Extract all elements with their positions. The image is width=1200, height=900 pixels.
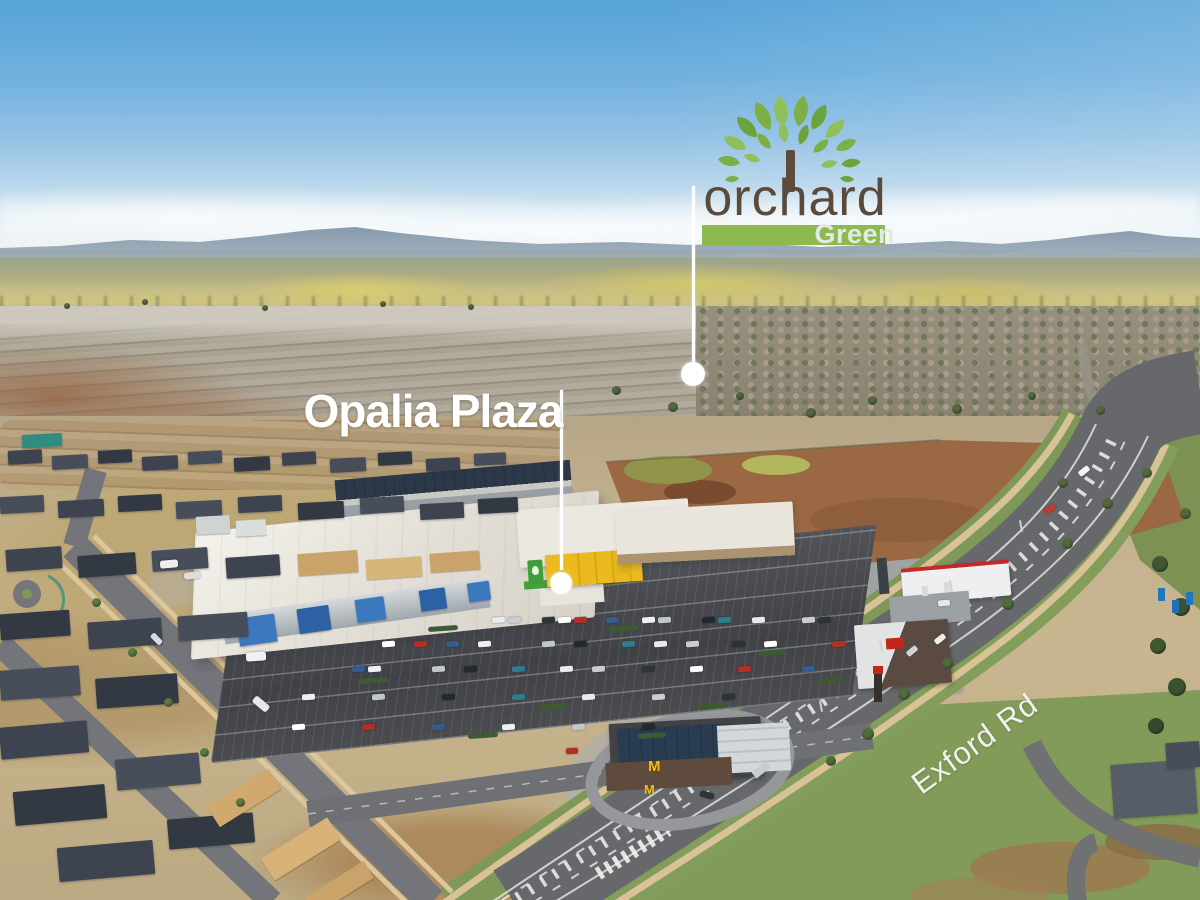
exford-rd-label: Exford Rd bbox=[896, 679, 1055, 808]
opalia-plaza-location-dot bbox=[550, 572, 572, 594]
marketing-overlay: Opalia Plaza Exford Rd orchard Green bbox=[0, 0, 1200, 900]
aerial-photo: M M Opalia Plaza Exford Rd orchard Green bbox=[0, 0, 1200, 900]
opalia-plaza-label: Opalia Plaza bbox=[288, 384, 578, 438]
orchard-logo-subtitle: Green bbox=[702, 219, 895, 250]
orchard-green-location-dot bbox=[681, 362, 705, 386]
